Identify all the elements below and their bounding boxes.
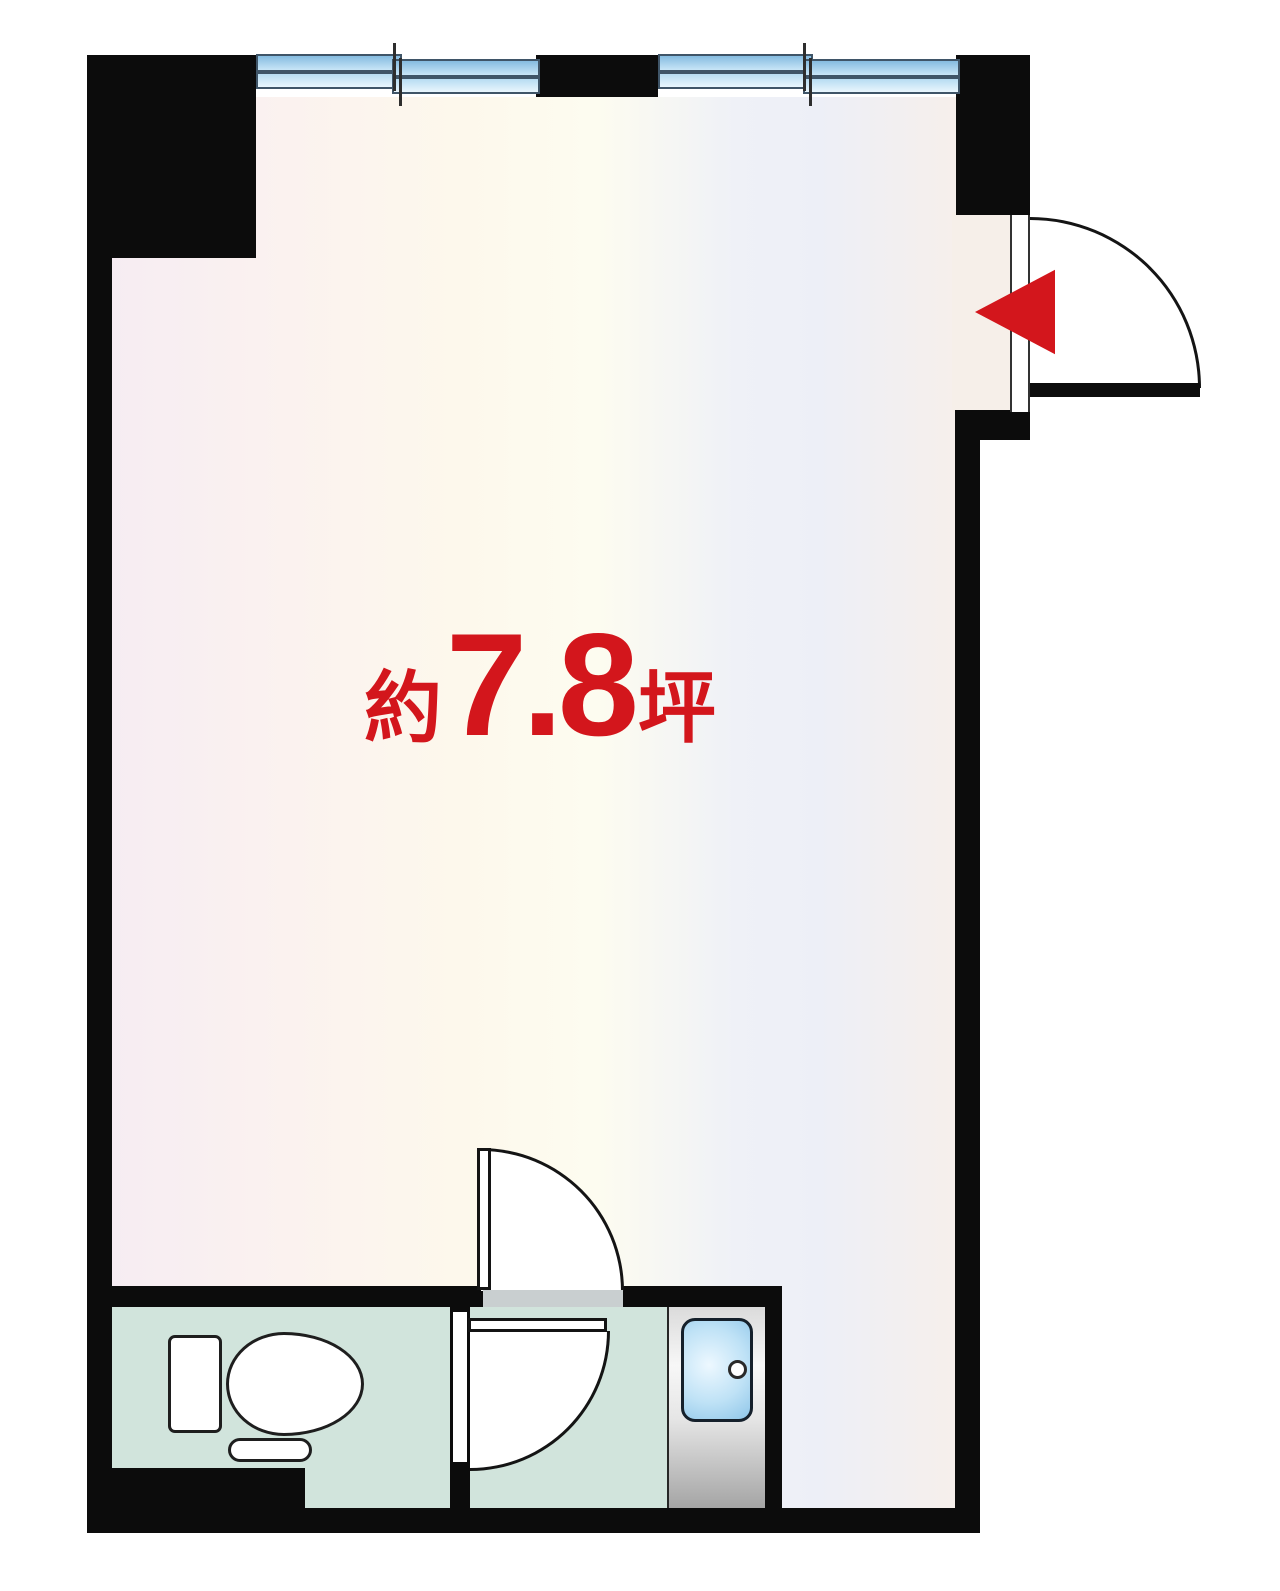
window-1-sash-a-top — [256, 54, 402, 72]
area-label-prefix: 約 — [364, 669, 442, 747]
window-1-center-tick — [393, 43, 396, 91]
bathtub-drain-icon — [728, 1360, 747, 1379]
area-label: 約 7.8 坪 — [280, 612, 800, 772]
window-2-sash-a-bottom — [658, 72, 813, 89]
window-1 — [256, 52, 536, 97]
window-2-center-tick — [803, 43, 806, 91]
wall-top-right-block — [956, 55, 1030, 215]
window-1-sash-a-bottom — [256, 72, 402, 89]
wall-right — [955, 438, 980, 1533]
toilet-door — [453, 1312, 467, 1462]
window-2-sash-b-bottom — [803, 77, 960, 94]
wall-wetrooms-top-right — [623, 1286, 782, 1307]
window-1-sash-b-top — [392, 59, 540, 77]
wall-left — [87, 55, 112, 1533]
area-label-unit: 坪 — [638, 669, 716, 747]
entry-door-leaf — [1030, 383, 1200, 397]
wall-wetrooms-top-left — [87, 1286, 483, 1307]
washroom-door-leaf — [468, 1318, 607, 1332]
main-door-leaf — [477, 1148, 491, 1290]
wall-bottom-left-block — [87, 1468, 305, 1533]
wall-right-step — [955, 410, 1030, 440]
window-1-sash-b-bottom — [392, 77, 540, 94]
window-1-center-tick-2 — [399, 58, 402, 106]
area-label-value: 7.8 — [442, 612, 638, 758]
window-2 — [658, 52, 956, 97]
floor-plan: 約 7.8 坪 — [0, 0, 1280, 1591]
entry-door-swing-arc — [1030, 217, 1201, 388]
wall-top-left-block — [87, 55, 256, 258]
toilet-tank — [168, 1335, 222, 1433]
washroom-threshold — [483, 1290, 623, 1307]
window-2-center-tick-2 — [809, 58, 812, 106]
wall-top-mid — [536, 55, 658, 97]
wall-bathunit-right — [765, 1303, 782, 1513]
toilet-step — [228, 1438, 312, 1462]
window-2-sash-a-top — [658, 54, 813, 72]
window-2-sash-b-top — [803, 59, 960, 77]
